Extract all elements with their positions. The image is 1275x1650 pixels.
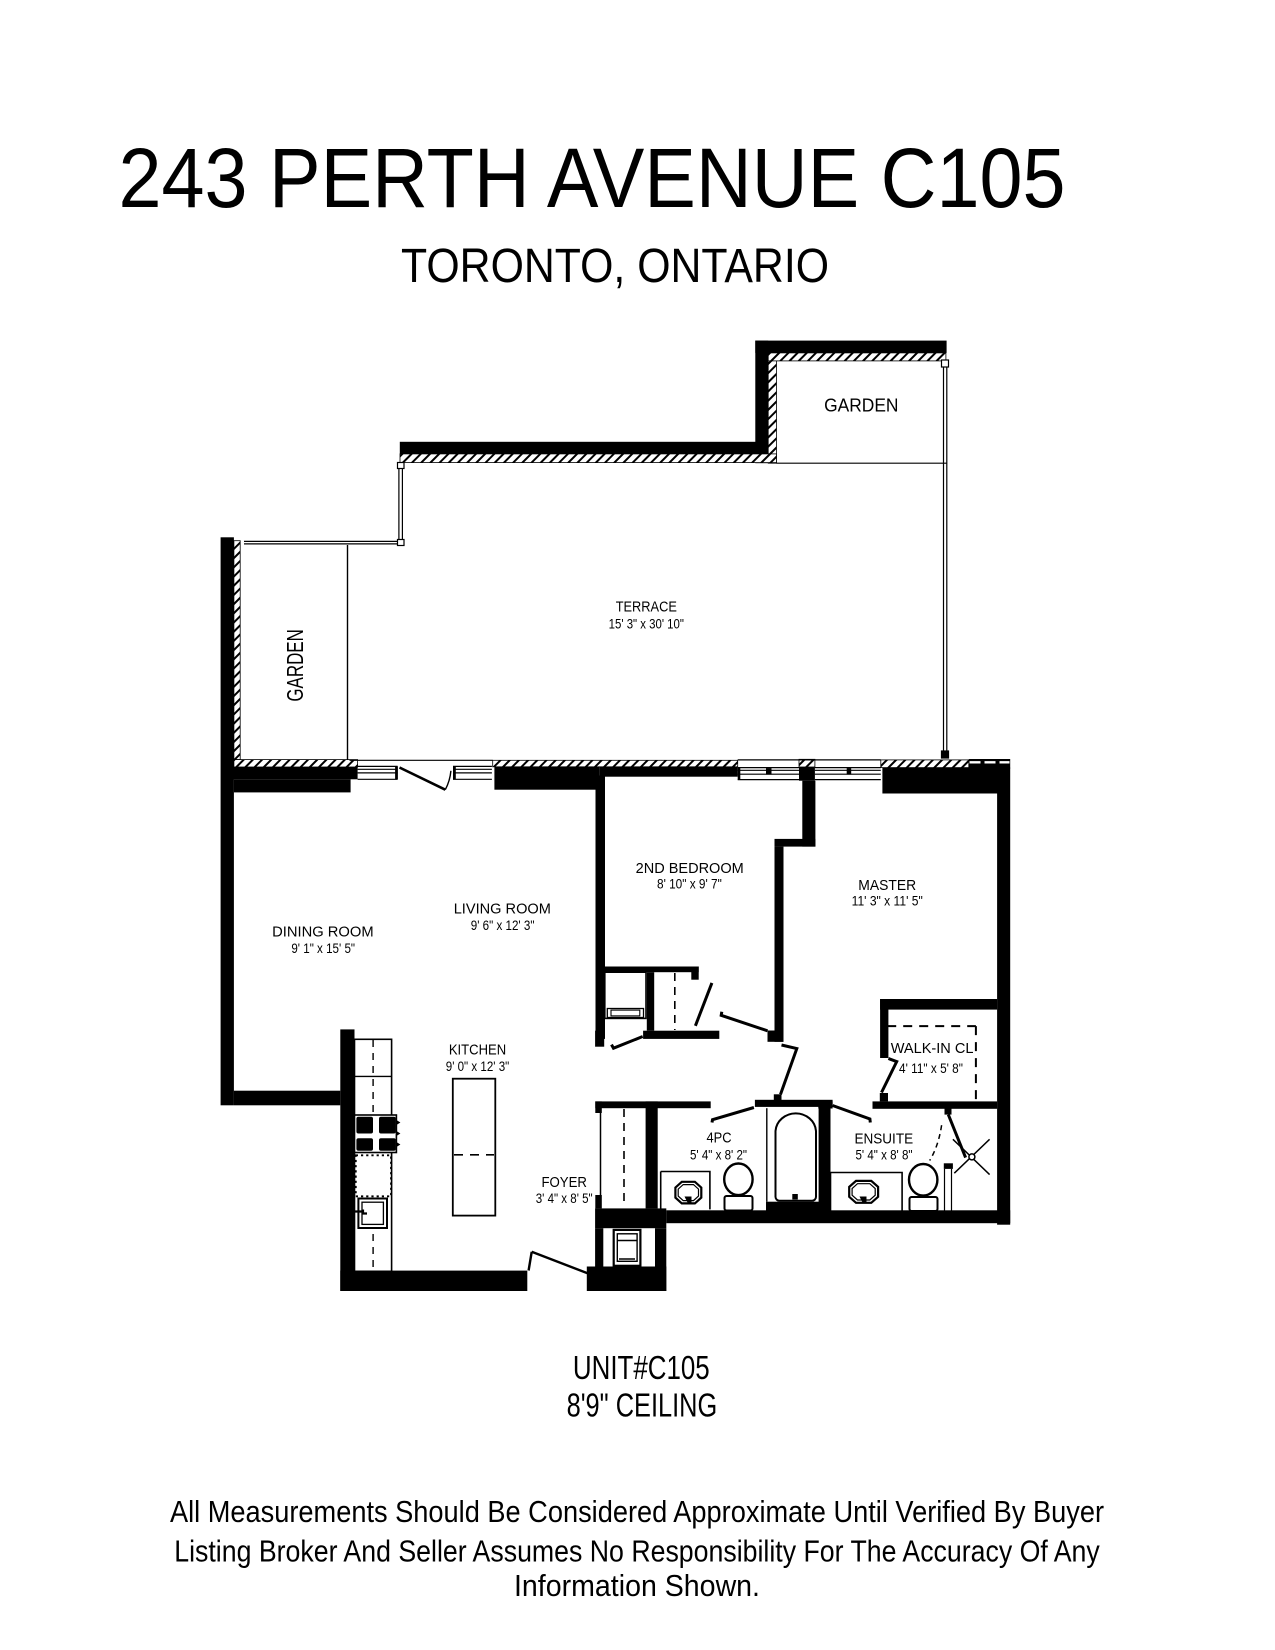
svg-text:ENSUITE: ENSUITE: [855, 1130, 914, 1147]
svg-text:4PC: 4PC: [707, 1129, 732, 1146]
svg-text:8'9" CEILING: 8'9" CEILING: [567, 1387, 718, 1424]
svg-text:UNIT#C105: UNIT#C105: [573, 1349, 710, 1386]
svg-text:3' 4" x 8' 5": 3' 4" x 8' 5": [536, 1191, 593, 1206]
svg-text:9' 0" x 12' 3": 9' 0" x 12' 3": [446, 1059, 510, 1074]
svg-text:KITCHEN: KITCHEN: [449, 1042, 506, 1059]
svg-text:8' 10" x 9' 7": 8' 10" x 9' 7": [657, 877, 722, 892]
svg-text:243 PERTH AVENUE C105: 243 PERTH AVENUE C105: [119, 131, 1066, 225]
svg-text:9' 6" x 12' 3": 9' 6" x 12' 3": [471, 918, 535, 933]
svg-text:Information Shown.: Information Shown.: [514, 1568, 760, 1603]
svg-text:TERRACE: TERRACE: [616, 598, 677, 615]
svg-text:LIVING ROOM: LIVING ROOM: [454, 901, 551, 918]
svg-text:Listing Broker And Seller Assu: Listing Broker And Seller Assumes No Res…: [174, 1534, 1100, 1569]
svg-text:4' 11" x 5' 8": 4' 11" x 5' 8": [899, 1061, 963, 1076]
svg-text:MASTER: MASTER: [858, 877, 916, 894]
svg-text:15' 3" x 30' 10": 15' 3" x 30' 10": [609, 617, 684, 632]
svg-text:11' 3" x 11' 5": 11' 3" x 11' 5": [852, 893, 923, 908]
svg-text:GARDEN: GARDEN: [824, 396, 898, 416]
svg-text:All Measurements Should Be Con: All Measurements Should Be Considered Ap…: [170, 1494, 1104, 1529]
svg-text:9' 1" x 15' 5": 9' 1" x 15' 5": [291, 941, 355, 956]
svg-text:DINING ROOM: DINING ROOM: [272, 923, 374, 940]
svg-text:2ND BEDROOM: 2ND BEDROOM: [636, 860, 744, 877]
svg-text:TORONTO, ONTARIO: TORONTO, ONTARIO: [401, 240, 829, 293]
svg-text:5' 4" x 8' 2": 5' 4" x 8' 2": [690, 1148, 747, 1163]
svg-text:5' 4" x 8' 8": 5' 4" x 8' 8": [856, 1148, 913, 1163]
svg-text:FOYER: FOYER: [541, 1174, 587, 1191]
svg-text:GARDEN: GARDEN: [282, 629, 308, 702]
svg-text:WALK-IN CL: WALK-IN CL: [891, 1040, 974, 1057]
